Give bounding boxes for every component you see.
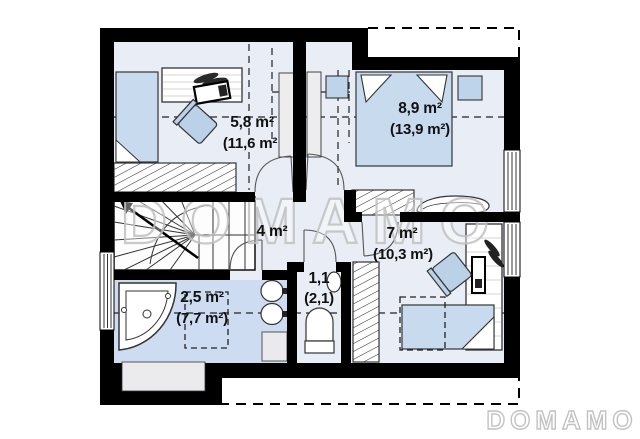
nightstand-right bbox=[458, 76, 482, 100]
wc-area-label: 1,1 bbox=[309, 270, 331, 287]
wall-partition bbox=[114, 192, 255, 202]
bathroom-counter bbox=[262, 332, 287, 361]
window-left-bathroom bbox=[100, 252, 114, 330]
sink-tap bbox=[282, 311, 287, 317]
window-right-bedroom bbox=[504, 150, 520, 212]
bathroom-area-label: 2,5 m² bbox=[180, 289, 224, 306]
wall-partition bbox=[293, 42, 306, 202]
sink bbox=[261, 281, 283, 302]
wc-gross-label: (2,1) bbox=[304, 290, 334, 307]
floor-plan: DOMAMO bbox=[0, 0, 640, 439]
wall-partition bbox=[262, 270, 287, 280]
bathroom-gross-label: (7,7 m²) bbox=[176, 310, 228, 327]
wall-partition bbox=[336, 262, 341, 272]
wall bbox=[504, 212, 520, 222]
monitor-base bbox=[475, 279, 482, 288]
wall bbox=[222, 363, 520, 378]
brand-logo: DOMAMO bbox=[486, 405, 637, 435]
wall-partition bbox=[287, 262, 297, 363]
wall bbox=[504, 57, 520, 150]
office-gross-label: (11,6 m² bbox=[223, 135, 277, 152]
wall-partition bbox=[341, 262, 351, 363]
floor-plan-page: DOMAMO bbox=[0, 0, 640, 439]
sink bbox=[261, 304, 283, 325]
cabinet bbox=[307, 72, 321, 157]
hall-area-label: 4 m² bbox=[256, 223, 287, 240]
wall-partition bbox=[297, 262, 304, 272]
bedroom2-gross-label: (10,3 m²) bbox=[373, 246, 433, 263]
toilet-tank bbox=[305, 341, 334, 353]
wall bbox=[352, 57, 520, 70]
wall bbox=[100, 28, 368, 42]
bedroom-area-label: 8,9 m² bbox=[398, 100, 442, 117]
nightstand-left bbox=[326, 76, 348, 98]
bathtub-tap bbox=[166, 294, 171, 299]
wardrobe bbox=[353, 262, 379, 362]
bedroom-gross-label: (13,9 m²) bbox=[390, 121, 450, 138]
window-right-bedroom2 bbox=[504, 222, 520, 277]
office-area-label: 5,8 m² bbox=[230, 114, 274, 131]
toilet-bowl bbox=[306, 308, 333, 341]
bathtub-tap bbox=[122, 308, 127, 313]
exterior-slab bbox=[122, 362, 205, 391]
exterior-notch bbox=[368, 28, 504, 57]
bedroom2-area-label: 7 m² bbox=[386, 225, 417, 242]
wall bbox=[100, 28, 114, 252]
wall-partition bbox=[351, 212, 362, 222]
wall bbox=[504, 277, 520, 378]
wall-partition bbox=[114, 270, 230, 280]
sink-tap bbox=[282, 288, 287, 294]
wall-partition bbox=[400, 212, 504, 222]
